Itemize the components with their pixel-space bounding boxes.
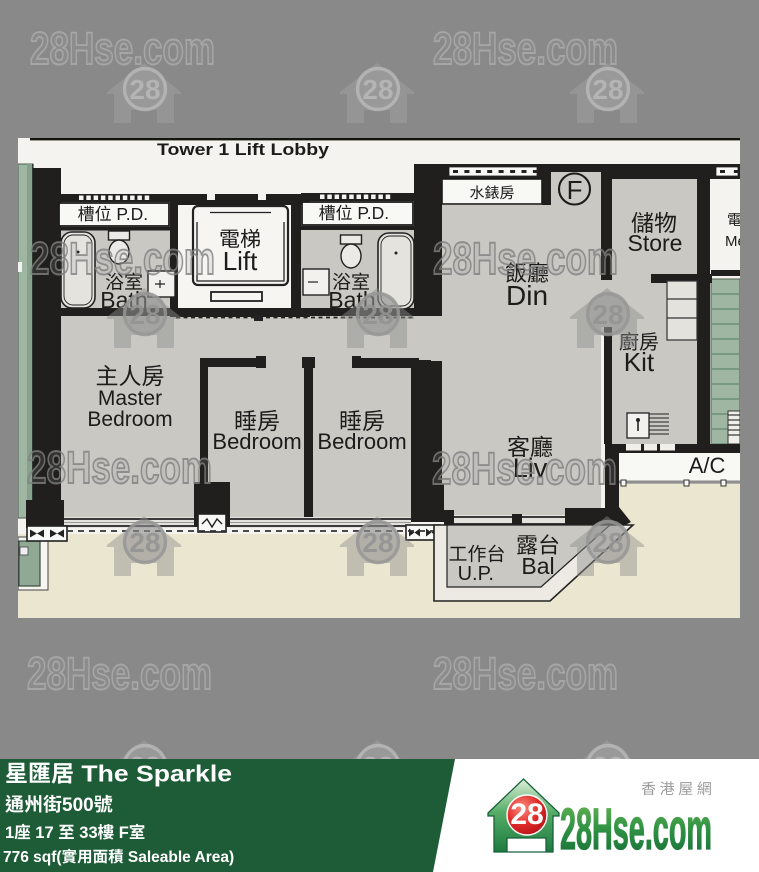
- svg-text:1: 1: [5, 824, 14, 842]
- svg-text:28Hse.com: 28Hse.com: [433, 23, 618, 74]
- svg-text:500: 500: [62, 795, 94, 816]
- svg-text:28Hse.com: 28Hse.com: [433, 648, 618, 699]
- svg-text:28Hse.com: 28Hse.com: [30, 23, 215, 74]
- svg-text:28Hse.com: 28Hse.com: [432, 443, 617, 494]
- svg-text:28Hse.com: 28Hse.com: [560, 797, 712, 862]
- svg-text:Saleable Area): Saleable Area): [128, 849, 234, 866]
- svg-text:28Hse.com: 28Hse.com: [27, 442, 212, 493]
- svg-text:17: 17: [35, 824, 53, 842]
- svg-text:The Sparkle: The Sparkle: [81, 761, 232, 787]
- svg-text:F: F: [119, 824, 129, 842]
- svg-text:28Hse.com: 28Hse.com: [27, 648, 212, 699]
- svg-text:33: 33: [79, 824, 97, 842]
- svg-text:28: 28: [510, 798, 543, 831]
- svg-text:28Hse.com: 28Hse.com: [30, 233, 215, 284]
- svg-text:28Hse.com: 28Hse.com: [433, 233, 618, 284]
- svg-text:776 sqf(: 776 sqf(: [3, 849, 62, 866]
